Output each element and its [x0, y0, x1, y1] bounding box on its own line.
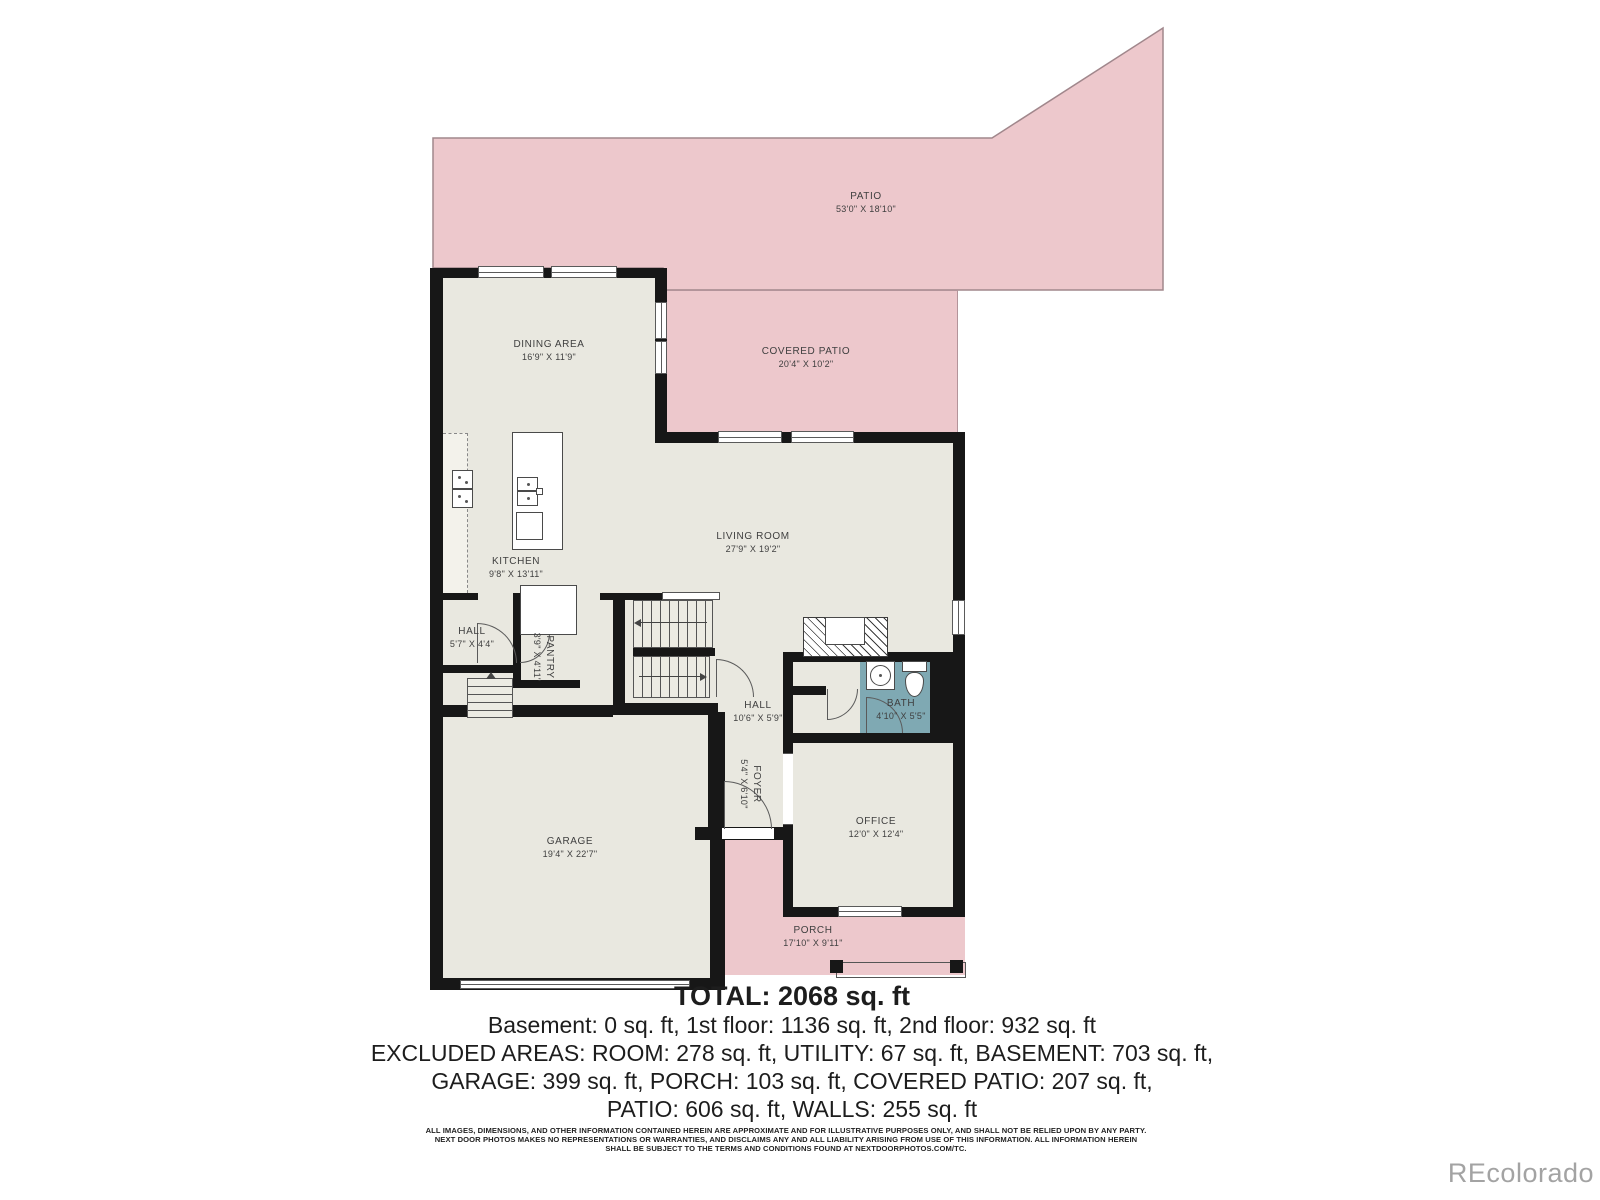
room-name: FOYER: [750, 759, 763, 808]
room-name: OFFICE: [849, 815, 904, 828]
wall: [443, 593, 478, 600]
floors-area-text: Basement: 0 sq. ft, 1st floor: 1136 sq. …: [0, 1011, 1584, 1039]
patio-area: [430, 25, 1166, 293]
kitchen-label: KITCHEN 9'8" X 13'11": [489, 555, 543, 581]
wall: [430, 665, 520, 673]
porch-post: [830, 960, 843, 973]
room-dims: 53'0" X 18'10": [836, 203, 896, 216]
disclaimer-line: NEXT DOOR PHOTOS MAKES NO REPRESENTATION…: [0, 1135, 1572, 1144]
firebox: [825, 617, 865, 645]
cooktop: [517, 491, 538, 506]
front-door-opening: [722, 828, 774, 839]
living-room-label: LIVING ROOM 27'9" X 19'2": [716, 530, 789, 556]
stair-run-line: [639, 676, 701, 677]
stair-run-line: [641, 622, 707, 623]
recolorado-watermark: REcolorado: [1448, 1158, 1594, 1189]
window: [655, 341, 667, 374]
disclaimer: ALL IMAGES, DIMENSIONS, AND OTHER INFORM…: [0, 1126, 1572, 1153]
kitchen-counter: [443, 433, 468, 593]
cooktop-control: [536, 488, 543, 495]
total-area-text: TOTAL: 2068 sq. ft: [0, 981, 1584, 1011]
room-dims: 17'10" X 9'11": [783, 937, 842, 950]
room-name: HALL: [733, 699, 782, 712]
window: [952, 600, 965, 635]
wall: [430, 268, 443, 990]
room-dims: 4'10" X 5'5": [876, 710, 925, 723]
window: [791, 431, 854, 443]
wall: [430, 705, 467, 717]
room-name: BATH: [876, 697, 925, 710]
room-dims: 12'0" X 12'4": [849, 828, 904, 841]
wall-oven: [452, 489, 473, 508]
toilet-tank: [902, 661, 927, 672]
covered-patio-label: COVERED PATIO 20'4" X 10'2": [762, 345, 851, 371]
pantry-label: PANTRY 3'9" X 4'11": [530, 633, 556, 682]
staircase-lower-run: [633, 656, 710, 698]
room-dims: 19'4" X 22'7": [543, 848, 598, 861]
area-summary: TOTAL: 2068 sq. ft Basement: 0 sq. ft, 1…: [0, 981, 1584, 1123]
room-dims: 16'9" X 11'9": [513, 351, 584, 364]
room-name: PANTRY: [543, 633, 556, 682]
room-name: DINING AREA: [513, 338, 584, 351]
room-dims: 10'6" X 5'9": [733, 712, 782, 725]
room-dims: 9'8" X 13'11": [489, 568, 543, 581]
room-name: PORCH: [783, 924, 842, 937]
foyer-label: FOYER 5'4" X 6'10": [737, 759, 763, 808]
chimney-wall: [930, 652, 965, 743]
office-label: OFFICE 12'0" X 12'4": [849, 815, 904, 841]
window: [551, 266, 617, 278]
stair-handrail: [662, 592, 720, 600]
disclaimer-line: SHALL BE SUBJECT TO THE TERMS AND CONDIT…: [0, 1144, 1572, 1153]
room-dims: 5'4" X 6'10": [737, 759, 750, 808]
room-dims: 27'9" X 19'2": [716, 543, 789, 556]
sink-faucet: [879, 674, 882, 677]
window: [478, 266, 544, 278]
dining-area-label: DINING AREA 16'9" X 11'9": [513, 338, 584, 364]
bath-label: BATH 4'10" X 5'5": [876, 697, 925, 723]
porch-post: [950, 960, 963, 973]
patio-shape: [433, 28, 1163, 290]
room-dims: 3'9" X 4'11": [530, 633, 543, 682]
room-dims: 5'7" X 4'4": [450, 638, 494, 651]
window: [838, 906, 902, 917]
excluded-areas-text-2: GARAGE: 399 sq. ft, PORCH: 103 sq. ft, C…: [0, 1067, 1584, 1095]
pantry-shelf: [520, 585, 577, 635]
porch-step: [836, 962, 966, 978]
wall: [613, 703, 718, 715]
stairs-direction-arrow-icon: [634, 619, 641, 627]
wall: [708, 712, 722, 840]
window: [655, 302, 667, 339]
wall: [953, 743, 965, 917]
wall: [600, 593, 662, 600]
stair-divider-wall: [633, 648, 715, 656]
wall: [613, 593, 625, 715]
hall-left-label: HALL 5'7" X 4'4": [450, 625, 494, 651]
room-dims: 20'4" X 10'2": [762, 358, 851, 371]
floor-plan-canvas: PATIO 53'0" X 18'10" COVERED PATIO 20'4"…: [0, 0, 1600, 1200]
disclaimer-line: ALL IMAGES, DIMENSIONS, AND OTHER INFORM…: [0, 1126, 1572, 1135]
patio-label: PATIO 53'0" X 18'10": [836, 190, 896, 216]
cooktop: [517, 477, 538, 491]
garage-label: GARAGE 19'4" X 22'7": [543, 835, 598, 861]
stairs-up-arrow-icon: [486, 672, 496, 679]
staircase-upper-run: [633, 600, 713, 648]
wall: [783, 733, 965, 743]
room-name: GARAGE: [543, 835, 598, 848]
room-name: COVERED PATIO: [762, 345, 851, 358]
island-sink: [516, 512, 543, 540]
office-cased-opening: [783, 753, 793, 825]
excluded-areas-text-3: PATIO: 606 sq. ft, WALLS: 255 sq. ft: [0, 1095, 1584, 1123]
room-name: HALL: [450, 625, 494, 638]
stairs-direction-arrow-icon: [700, 673, 707, 681]
porch-label: PORCH 17'10" X 9'11": [783, 924, 842, 950]
window: [718, 431, 782, 443]
wall: [430, 268, 667, 278]
garage-entry-stairs: [467, 678, 513, 718]
room-name: PATIO: [836, 190, 896, 203]
wall: [513, 705, 613, 717]
wall-oven: [452, 470, 473, 489]
wall: [788, 686, 826, 695]
excluded-areas-text: EXCLUDED AREAS: ROOM: 278 sq. ft, UTILIT…: [0, 1039, 1584, 1067]
room-name: LIVING ROOM: [716, 530, 789, 543]
hall-center-label: HALL 10'6" X 5'9": [733, 699, 782, 725]
room-name: KITCHEN: [489, 555, 543, 568]
